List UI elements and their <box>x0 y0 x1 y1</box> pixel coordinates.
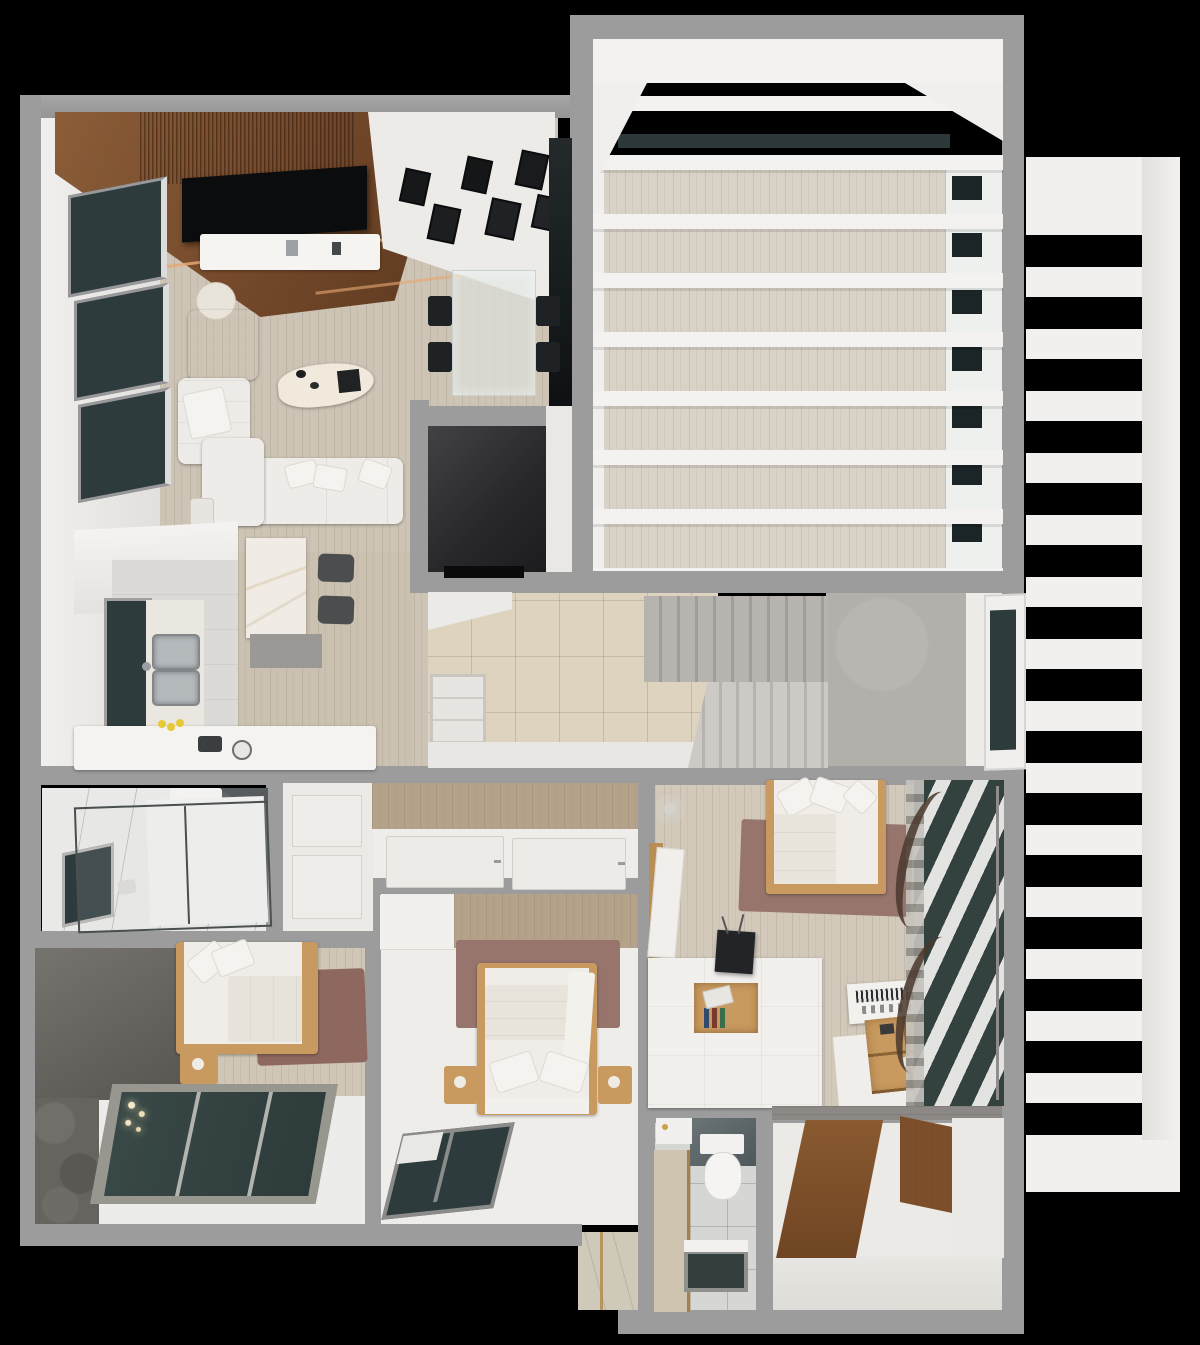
bedroomR-blanket <box>774 814 836 884</box>
lemon-3 <box>176 719 184 727</box>
pergola-header <box>593 39 1003 83</box>
glass-dining-table <box>452 270 536 396</box>
kitchen-clock <box>232 740 252 760</box>
coffee-table-tray <box>337 369 361 393</box>
wc-toilet-tank <box>700 1134 744 1154</box>
bedroomC-lamp-2 <box>608 1076 620 1088</box>
hall-recessed-panel-1 <box>386 836 504 888</box>
wc-toilet-bowl <box>704 1152 742 1200</box>
toaster <box>198 736 222 752</box>
bar-stool-1 <box>318 553 355 582</box>
stair-lower-flight <box>688 682 828 768</box>
dressing-hall-wall-face <box>772 1256 1004 1312</box>
bedroomL-blanket <box>228 976 302 1042</box>
louver-bottom-band <box>1026 1140 1180 1192</box>
dining-chair-4 <box>536 342 560 372</box>
cubby-book-3 <box>720 1008 725 1028</box>
hall-door-handle-2 <box>618 862 625 865</box>
wall-wc-divider <box>756 1118 773 1312</box>
bedroomC-window-lightpane <box>397 1132 444 1164</box>
bedroomR-dried-plant-icon <box>648 786 692 832</box>
folding-glass-door-pane <box>990 610 1016 751</box>
console-speaker <box>286 240 298 256</box>
bedroomL-chandelier-icon <box>118 1092 152 1136</box>
ribbon-window-3 <box>78 387 171 503</box>
wall-terrace-top <box>570 15 1022 39</box>
island-marble-top <box>246 538 306 638</box>
shower-glass <box>74 801 272 934</box>
curtain-rod <box>996 786 999 1100</box>
side-table-lamp <box>190 498 214 526</box>
sink-basin-1 <box>152 634 200 670</box>
stair-landing <box>826 592 966 768</box>
hall-door-handle-1 <box>494 860 501 863</box>
stair-upper-flight <box>644 596 828 682</box>
floor-plan-render <box>0 0 1200 1345</box>
stair-hall-white-patch <box>546 406 572 572</box>
coffee-table-deco <box>296 370 306 378</box>
cubby-book-2 <box>712 1008 717 1028</box>
bedroomR-dresser <box>648 958 822 1108</box>
walnut-cabinet <box>900 1116 952 1213</box>
black-armchair <box>188 310 258 380</box>
lemon-1 <box>158 720 166 728</box>
louver-slats <box>1026 205 1144 1141</box>
bedroomC-lamp-1 <box>454 1076 466 1088</box>
wardrobe-panel-1 <box>292 795 362 847</box>
island-base <box>250 634 322 668</box>
wardrobe-panel-2 <box>292 855 362 919</box>
wall-stairhall-left <box>410 400 429 593</box>
sink-faucet-icon <box>142 662 151 671</box>
bedroomR-tv <box>715 930 756 975</box>
bedroomC-foot-bench <box>485 1098 589 1114</box>
dressing-right-wall-face <box>952 1118 1004 1258</box>
stair-hall-south-face <box>428 742 720 768</box>
sink-basin-2 <box>152 670 200 706</box>
dining-chair-3 <box>536 296 560 326</box>
ribbon-window-1 <box>68 176 167 297</box>
cubby-book-1 <box>704 1008 709 1028</box>
hall-plank-wall <box>372 783 638 829</box>
wall-bottom-left-block <box>20 1224 582 1246</box>
dark-volume <box>428 426 546 572</box>
wc-vanity-deco <box>662 1124 668 1130</box>
wc-vanity <box>656 1118 692 1144</box>
bedroomL-stone-wall-lower <box>35 1098 99 1224</box>
wall-tv <box>182 166 367 243</box>
dining-chair-2 <box>428 342 452 372</box>
wc-skylight-sill <box>684 1240 748 1252</box>
wc-skylight-glass <box>688 1254 744 1288</box>
organizer-item-1 <box>880 1023 895 1034</box>
bedroomL-nightstand-lamp <box>192 1058 204 1070</box>
shower-stool <box>117 879 137 895</box>
dark-volume-slit <box>444 566 524 578</box>
hall-recessed-panel-2 <box>512 838 626 890</box>
wall-terrace-left <box>570 15 593 593</box>
console-deco <box>332 242 341 255</box>
coffee-table-deco2 <box>310 382 319 389</box>
entry-alcove-tile <box>578 1232 640 1310</box>
bedroomC-closet <box>380 895 456 950</box>
ribbon-window-2 <box>74 283 169 401</box>
dining-chair-1 <box>428 296 452 326</box>
bar-stool-2 <box>318 595 355 624</box>
lemon-2 <box>167 723 175 731</box>
entry-alcove-brass-strip <box>600 1232 603 1310</box>
bedroomL-stone-wall <box>35 948 185 1100</box>
wall-bottom-right-block <box>618 1310 1024 1334</box>
pergola-beams <box>593 96 1003 571</box>
louver-rail <box>1142 157 1180 1192</box>
kitchen-bottom-counter <box>74 726 376 770</box>
